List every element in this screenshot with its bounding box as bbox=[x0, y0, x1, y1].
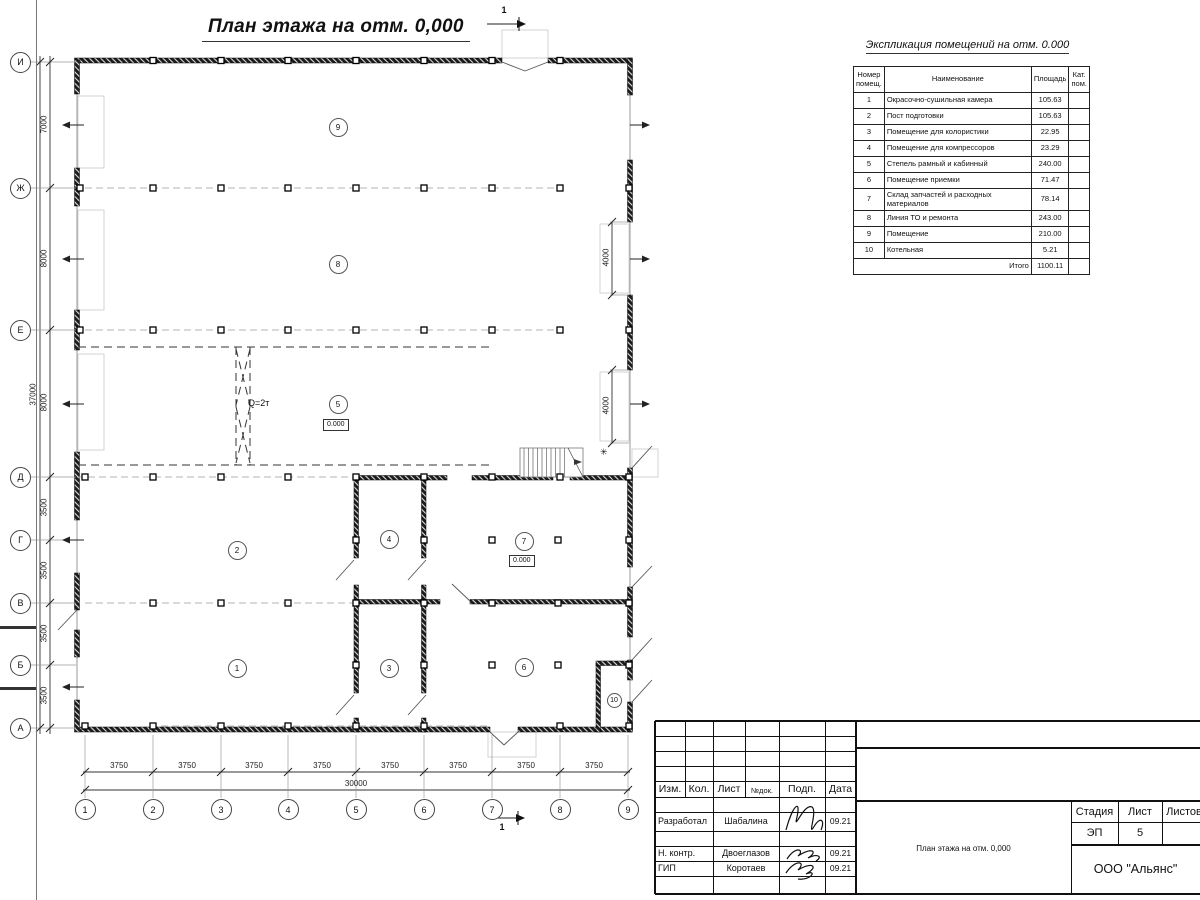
elevation-mark: 0.000 bbox=[323, 419, 349, 431]
axis-bubble-В: В bbox=[10, 593, 31, 614]
tb-line bbox=[655, 812, 856, 813]
room-number-3: 3 bbox=[380, 659, 399, 678]
schedule-cell: 105.63 bbox=[1031, 93, 1069, 109]
dim-gate: 4000 bbox=[602, 386, 611, 426]
schedule-cell: 105.63 bbox=[1031, 109, 1069, 125]
schedule-row: 3Помещение для колористики22.95 bbox=[854, 125, 1090, 141]
schedule-cell: Помещение bbox=[884, 227, 1031, 243]
schedule-row: 4Помещение для компрессоров23.29 bbox=[854, 141, 1090, 157]
dim-total-left: 37000 bbox=[29, 375, 38, 415]
schedule-cell: Линия ТО и ремонта bbox=[884, 211, 1031, 227]
tb-company: ООО "Альянс" bbox=[1071, 862, 1200, 876]
schedule-row: 10Котельная5.21 bbox=[854, 243, 1090, 259]
schedule-cell: Пост подготовки bbox=[884, 109, 1031, 125]
room-number-10: 10 bbox=[607, 693, 622, 708]
room-number-2: 2 bbox=[228, 541, 247, 560]
crane-runway bbox=[78, 347, 490, 465]
tb-line bbox=[655, 893, 1200, 895]
tb-line bbox=[655, 720, 1200, 722]
schedule-row: 1Окрасочно-сушильная камера105.63 bbox=[854, 93, 1090, 109]
tb-date-gip: 09.21 bbox=[825, 862, 856, 874]
fold-mark bbox=[0, 687, 36, 690]
axis-bubble-5: 5 bbox=[346, 799, 367, 820]
dim-bottom: 3750 bbox=[506, 761, 546, 770]
dim-bottom: 3750 bbox=[302, 761, 342, 770]
schedule-cell: 10 bbox=[854, 243, 885, 259]
tb-stage-header: Стадия bbox=[1071, 805, 1118, 819]
walls bbox=[75, 58, 633, 732]
schedule-cell: 5.21 bbox=[1031, 243, 1069, 259]
tb-sheet-header: Лист bbox=[1118, 805, 1162, 819]
gate-aprons bbox=[78, 30, 658, 757]
stair-asterisk: ✳ bbox=[600, 447, 608, 458]
axis-bubble-1: 1 bbox=[75, 799, 96, 820]
crane-capacity-label: Q=2т bbox=[248, 398, 269, 408]
schedule-cell: 23.29 bbox=[1031, 141, 1069, 157]
tb-line bbox=[856, 800, 1200, 802]
tb-line bbox=[654, 721, 656, 894]
schedule-cell: 22.95 bbox=[1031, 125, 1069, 141]
dim-left: 3500 bbox=[40, 614, 49, 654]
tb-line bbox=[1071, 844, 1200, 845]
axis-bubble-7: 7 bbox=[482, 799, 503, 820]
section-marks bbox=[487, 17, 526, 825]
schedule-cell bbox=[1069, 227, 1089, 243]
schedule-title: Экспликация помещений на отм. 0.000 bbox=[845, 39, 1090, 51]
schedule-cell bbox=[1069, 189, 1089, 211]
schedule-cell: 4 bbox=[854, 141, 885, 157]
schedule-row: 5Степель рамный и кабинный240.00 bbox=[854, 157, 1090, 173]
axis-bubble-Е: Е bbox=[10, 320, 31, 341]
schedule-cell: 9 bbox=[854, 227, 885, 243]
wall-thin-lines bbox=[77, 58, 630, 732]
schedule-cell: Окрасочно-сушильная камера bbox=[884, 93, 1031, 109]
tb-date-ncontrol: 09.21 bbox=[825, 847, 856, 859]
schedule-total-cat bbox=[1069, 259, 1089, 275]
axis-bubble-Д: Д bbox=[10, 467, 31, 488]
tb-col-podp: Подп. bbox=[779, 783, 825, 795]
tb-name-ncontrol: Двоеглазов bbox=[713, 847, 779, 859]
tb-line bbox=[856, 747, 1200, 748]
axis-dashed-lines bbox=[77, 188, 560, 726]
tb-col-data: Дата bbox=[825, 783, 856, 795]
schedule-row: 6Помещение приемки71.47 bbox=[854, 173, 1090, 189]
dim-bottom: 3750 bbox=[574, 761, 614, 770]
schedule-cell: 210.00 bbox=[1031, 227, 1069, 243]
sheet-frame-left-border bbox=[36, 0, 37, 900]
schedule-cell: 71.47 bbox=[1031, 173, 1069, 189]
schedule-cell: 78.14 bbox=[1031, 189, 1069, 211]
dim-left: 3500 bbox=[40, 676, 49, 716]
schedule-cell: 3 bbox=[854, 125, 885, 141]
room-number-8: 8 bbox=[329, 255, 348, 274]
page-title: План этажа на отм. 0,000 bbox=[202, 16, 470, 42]
schedule-row: 9Помещение210.00 bbox=[854, 227, 1090, 243]
schedule-cell: Помещение приемки bbox=[884, 173, 1031, 189]
schedule-cell: 1 bbox=[854, 93, 885, 109]
elevation-mark: 0.000 bbox=[509, 555, 535, 567]
tb-col-izm: Изм. bbox=[656, 783, 684, 795]
axis-bubble-8: 8 bbox=[550, 799, 571, 820]
schedule-header-number: Номер помещ. bbox=[854, 67, 885, 93]
tb-sheet-value: 5 bbox=[1118, 826, 1162, 840]
tb-line bbox=[655, 831, 856, 832]
dim-bottom: 3750 bbox=[438, 761, 478, 770]
schedule-header-cat: Кат. пом. bbox=[1069, 67, 1089, 93]
schedule-cell: 5 bbox=[854, 157, 885, 173]
schedule-cell bbox=[1069, 125, 1089, 141]
schedule-cell bbox=[1069, 109, 1089, 125]
schedule-header-name: Наименование bbox=[884, 67, 1031, 93]
axis-bubble-6: 6 bbox=[414, 799, 435, 820]
schedule-header-area: Площадь bbox=[1031, 67, 1069, 93]
schedule-cell: Помещение для компрессоров bbox=[884, 141, 1031, 157]
axis-bubble-2: 2 bbox=[143, 799, 164, 820]
drawing-sheet: { "drawing_title": "План этажа на отм. 0… bbox=[0, 0, 1200, 900]
tb-role-developer: Разработал bbox=[658, 815, 714, 827]
dim-bottom: 3750 bbox=[99, 761, 139, 770]
dim-left: 8000 bbox=[40, 383, 49, 423]
tb-date-developer: 09.21 bbox=[825, 815, 856, 827]
tb-doc-title: План этажа на отм. 0,000 bbox=[856, 841, 1071, 855]
room-schedule-table: Номер помещ. Наименование Площадь Кат. п… bbox=[853, 66, 1090, 275]
section-mark-label: 1 bbox=[495, 822, 509, 832]
axis-bubble-И: И bbox=[10, 52, 31, 73]
axis-bubble-Ж: Ж bbox=[10, 178, 31, 199]
schedule-cell bbox=[1069, 93, 1089, 109]
axis-bubble-3: 3 bbox=[211, 799, 232, 820]
schedule-cell: 240.00 bbox=[1031, 157, 1069, 173]
room-number-5: 5 bbox=[329, 395, 348, 414]
axis-bubble-А: А bbox=[10, 718, 31, 739]
schedule-cell bbox=[1069, 157, 1089, 173]
room-number-7: 7 bbox=[515, 532, 534, 551]
schedule-total-value: 1100.11 bbox=[1031, 259, 1069, 275]
axis-bubble-9: 9 bbox=[618, 799, 639, 820]
dim-left: 7000 bbox=[40, 105, 49, 145]
schedule-cell: Помещение для колористики bbox=[884, 125, 1031, 141]
tb-col-list: Лист bbox=[713, 783, 745, 795]
schedule-cell: 8 bbox=[854, 211, 885, 227]
schedule-cell: 6 bbox=[854, 173, 885, 189]
tb-role-ncontrol: Н. контр. bbox=[658, 847, 714, 859]
tb-sheets-header: Листов bbox=[1162, 805, 1200, 819]
axis-bubble-4: 4 bbox=[278, 799, 299, 820]
dim-total-bottom: 30000 bbox=[336, 779, 376, 788]
schedule-row: 7Склад запчастей и расходных материалов7… bbox=[854, 189, 1090, 211]
tb-line bbox=[1071, 822, 1200, 823]
room-number-4: 4 bbox=[380, 530, 399, 549]
schedule-row: 8Линия ТО и ремонта243.00 bbox=[854, 211, 1090, 227]
schedule-cell bbox=[1069, 211, 1089, 227]
schedule-cell: 243.00 bbox=[1031, 211, 1069, 227]
dim-bottom: 3750 bbox=[167, 761, 207, 770]
stairs bbox=[520, 448, 583, 477]
dim-gate: 4000 bbox=[602, 238, 611, 278]
dim-left: 3500 bbox=[40, 488, 49, 528]
room-number-9: 9 bbox=[329, 118, 348, 137]
schedule-cell bbox=[1069, 243, 1089, 259]
tb-role-gip: ГИП bbox=[658, 862, 714, 874]
schedule-total-label: Итого bbox=[854, 259, 1032, 275]
tb-name-gip: Коротаев bbox=[713, 862, 779, 874]
schedule-cell bbox=[1069, 173, 1089, 189]
room-number-6: 6 bbox=[515, 658, 534, 677]
axis-bubble-Б: Б bbox=[10, 655, 31, 676]
dim-left: 8000 bbox=[40, 239, 49, 279]
schedule-cell: 2 bbox=[854, 109, 885, 125]
schedule-cell: 7 bbox=[854, 189, 885, 211]
schedule-row: 2Пост подготовки105.63 bbox=[854, 109, 1090, 125]
signatures bbox=[786, 806, 823, 879]
dim-left: 3500 bbox=[40, 551, 49, 591]
schedule-cell: Склад запчастей и расходных материалов bbox=[884, 189, 1031, 211]
schedule-cell: Котельная bbox=[884, 243, 1031, 259]
schedule-cell bbox=[1069, 141, 1089, 157]
tb-line bbox=[655, 876, 856, 877]
section-mark-label: 1 bbox=[497, 5, 511, 15]
tb-name-developer: Шабалина bbox=[713, 815, 779, 827]
room-number-1: 1 bbox=[228, 659, 247, 678]
tb-stage-value: ЭП bbox=[1071, 826, 1118, 840]
tb-col-kol: Кол. bbox=[685, 783, 713, 795]
tb-col-ndok: №док. bbox=[745, 784, 779, 796]
dim-bottom: 3750 bbox=[370, 761, 410, 770]
dim-bottom: 3750 bbox=[234, 761, 274, 770]
schedule-cell: Степель рамный и кабинный bbox=[884, 157, 1031, 173]
fold-mark bbox=[0, 626, 36, 629]
axis-bubble-Г: Г bbox=[10, 530, 31, 551]
